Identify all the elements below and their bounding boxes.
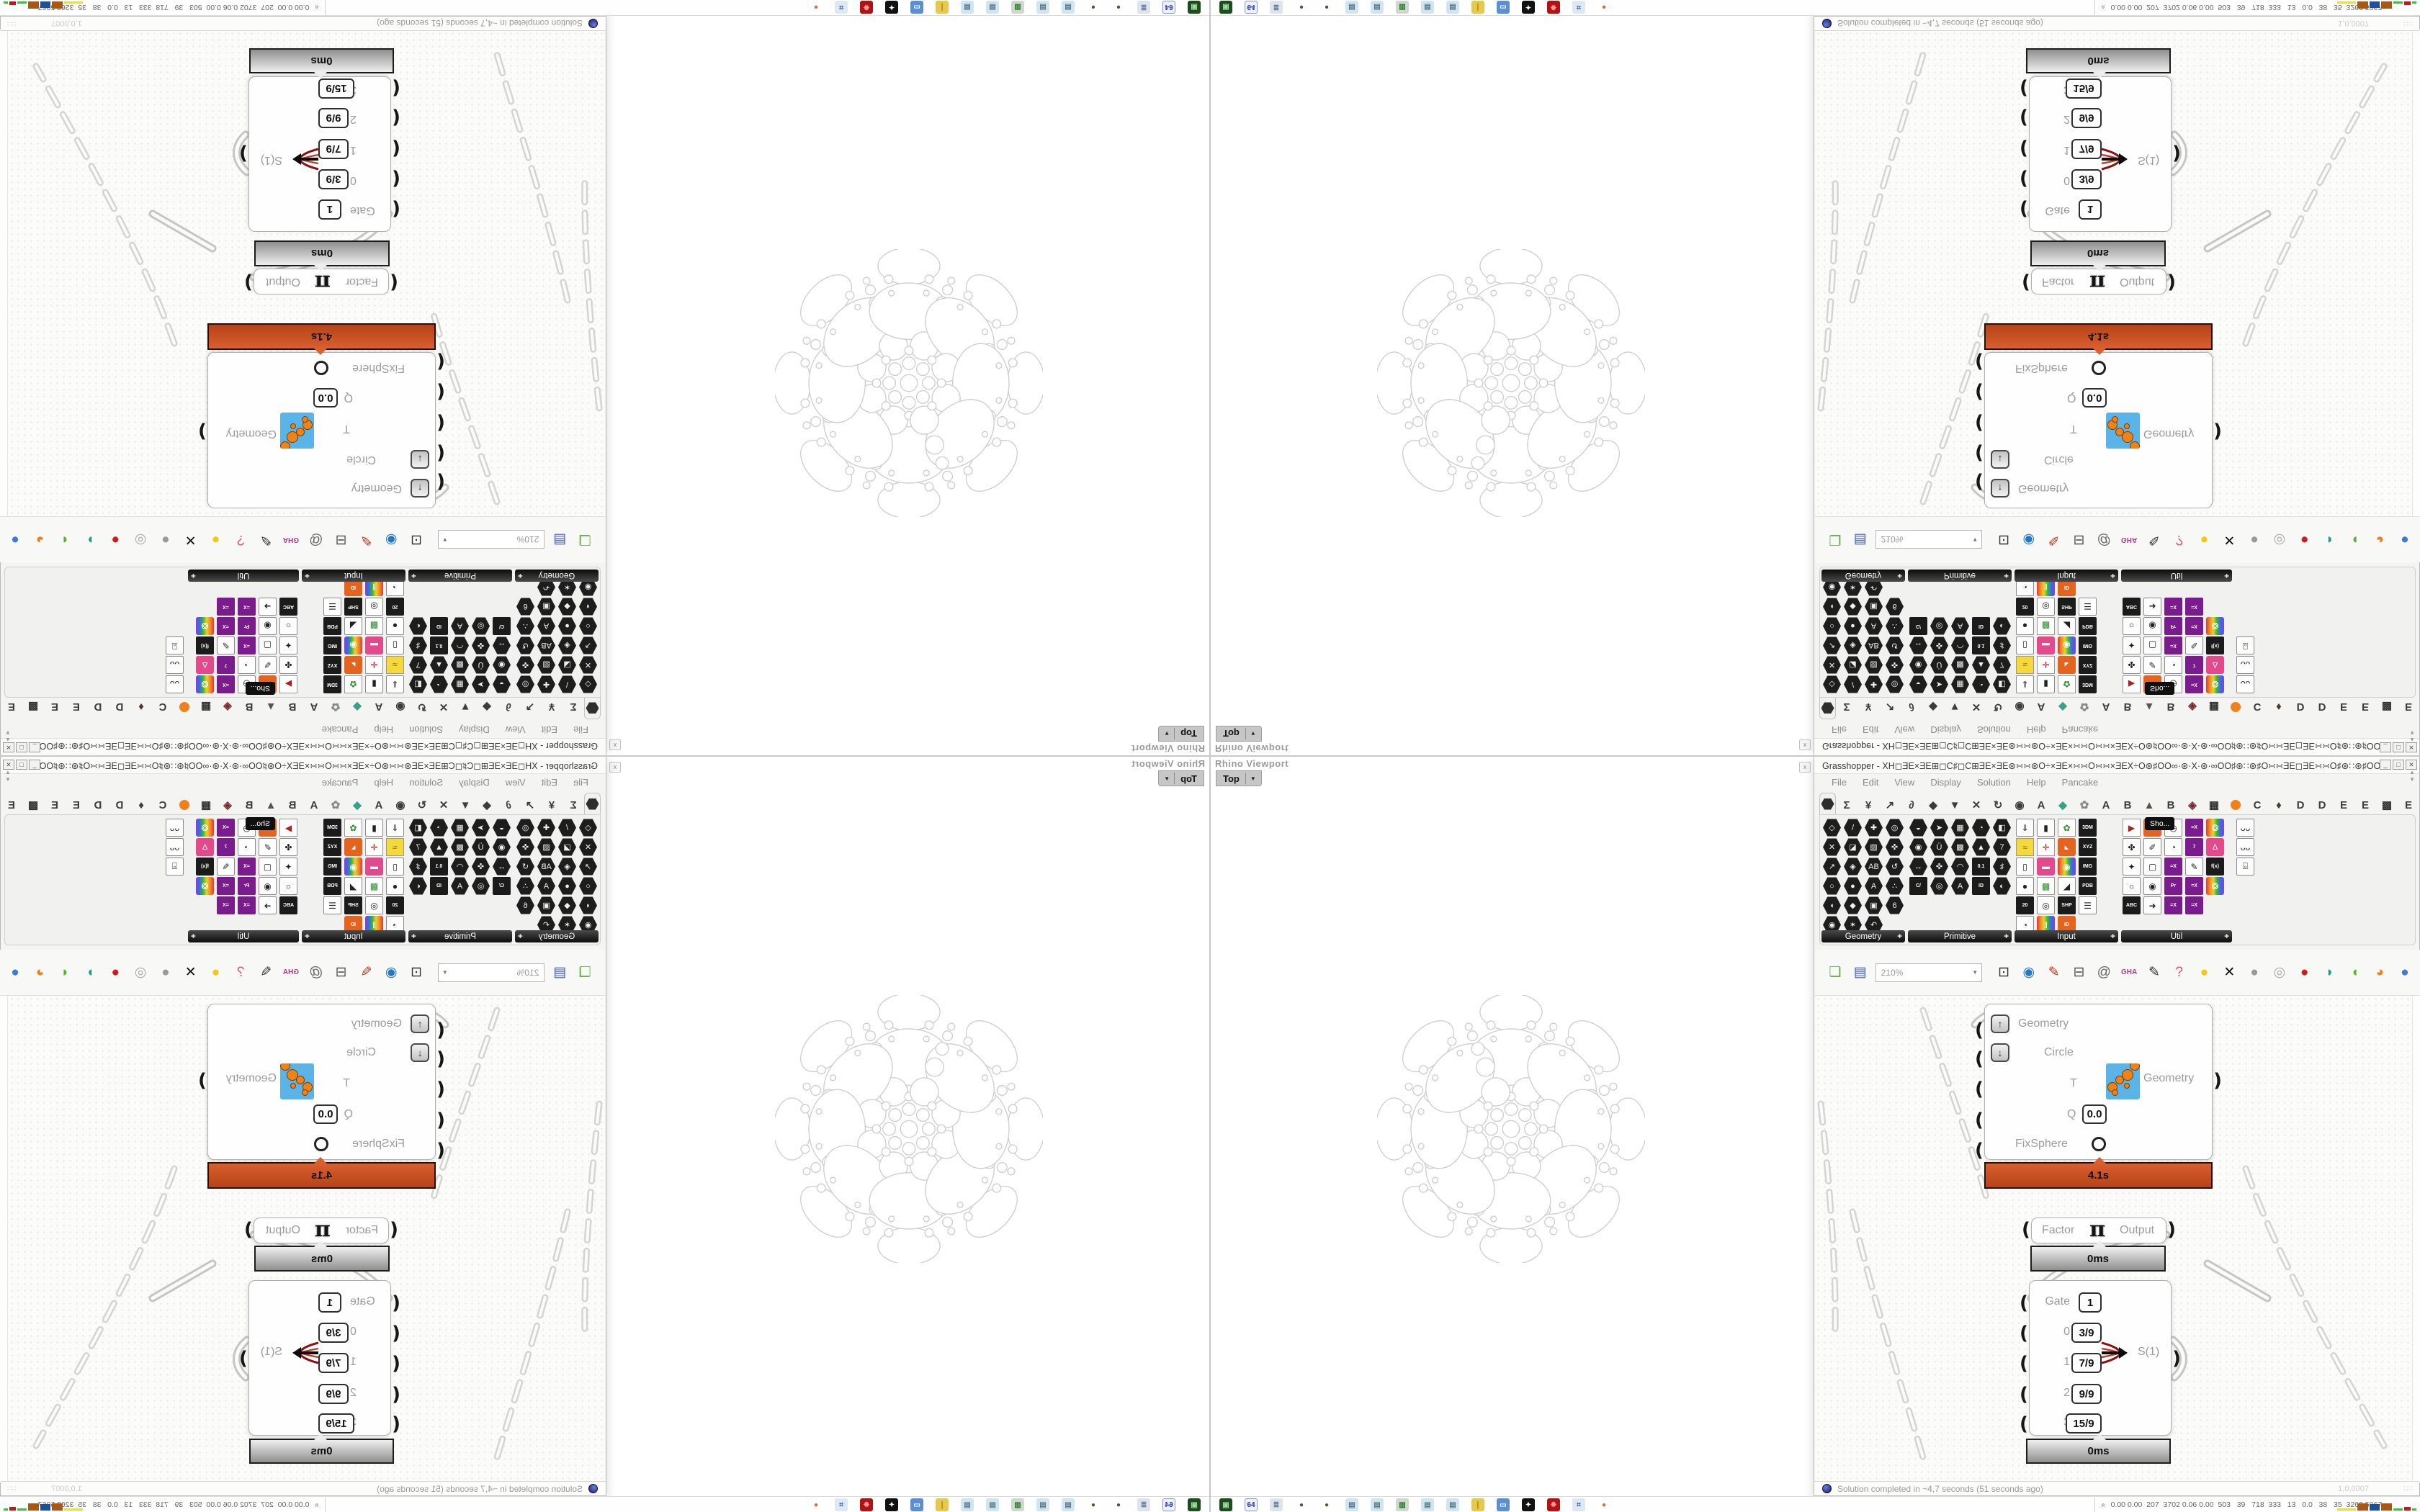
component-icon[interactable]: ◆ xyxy=(558,896,576,914)
component-icon[interactable]: ◔ xyxy=(1972,675,1990,693)
coin-icon[interactable]: ● xyxy=(1320,1,1333,14)
tab-intersect[interactable]: ✕ xyxy=(1966,698,1987,716)
component-icon[interactable]: ➜ xyxy=(259,896,277,914)
notepad-icon[interactable]: ▤ xyxy=(1345,1,1358,14)
component-icon[interactable]: ● xyxy=(1844,877,1862,895)
component-icon[interactable]: ✚ xyxy=(1865,675,1883,693)
component-icon[interactable]: ◣ xyxy=(2058,838,2076,856)
input-socket[interactable]: ( xyxy=(392,171,400,186)
component-icon[interactable]: A xyxy=(537,877,555,895)
sketch-pen-icon[interactable]: ✎ xyxy=(356,962,376,984)
ball-orange-icon[interactable]: ◕ xyxy=(2370,529,2390,551)
tab-plugin-d2[interactable]: D xyxy=(87,796,109,814)
component-icon[interactable]: ➤ xyxy=(1930,675,1948,693)
component-icon[interactable]: PDB xyxy=(323,617,341,635)
component-icon[interactable]: ✦ xyxy=(2123,636,2141,654)
component-icon[interactable]: ✦ xyxy=(2123,858,2141,876)
component-icon[interactable]: ◧ xyxy=(1993,675,2011,693)
output-socket[interactable]: ) xyxy=(198,1074,207,1088)
gate-value-box[interactable]: 15/9 xyxy=(318,1413,354,1434)
component-icon[interactable]: ◣ xyxy=(2058,656,2076,674)
lightbulb-icon[interactable]: ● xyxy=(206,529,226,551)
input-socket[interactable]: ( xyxy=(2020,171,2028,186)
component-icon[interactable]: ✎ xyxy=(217,636,235,654)
menu-item-solution[interactable]: Solution xyxy=(1977,725,2011,736)
component-icon[interactable]: ▧ xyxy=(1865,838,1883,856)
component-icon[interactable]: ◪ xyxy=(558,838,576,856)
component-icon[interactable]: ◈ xyxy=(558,858,576,876)
tab-plugin-grid[interactable]: ▦ xyxy=(195,796,217,814)
component-icon[interactable]: ▯ xyxy=(2016,636,2034,654)
component-icon[interactable]: ❂ xyxy=(196,675,214,693)
component-icon[interactable]: ✜ xyxy=(1886,838,1904,856)
component-icon[interactable]: ▩ xyxy=(2037,877,2055,895)
blob-teal-icon[interactable]: ◗ xyxy=(2320,529,2340,551)
input-socket[interactable]: ( xyxy=(2020,81,2028,95)
component-icon[interactable]: Pr xyxy=(2164,877,2182,895)
fixsphere-toggle[interactable] xyxy=(2092,1137,2106,1151)
input-socket[interactable]: ( xyxy=(392,1326,400,1341)
component-icon[interactable]: Δ xyxy=(2206,656,2224,674)
component-icon[interactable]: ✕ xyxy=(1823,656,1841,674)
tab-intersect[interactable]: ✕ xyxy=(1966,796,1987,814)
viewport-close-icon[interactable]: x xyxy=(1799,762,1811,773)
component-icon[interactable]: Ü xyxy=(472,656,490,674)
grasshopper-titlebar[interactable]: Grasshopper - XH◻ƎE×ƎE⊞◻C♯◻C⊞ƎE×ƎE⊛∺∺⊛O÷… xyxy=(1814,757,2419,774)
gate-value-box[interactable]: 1 xyxy=(318,199,341,220)
tab-plugin-a1[interactable]: A xyxy=(2030,796,2052,814)
tab-plugin-grid[interactable]: ▦ xyxy=(2203,796,2225,814)
tab-plugin-a1[interactable]: A xyxy=(368,698,390,716)
focus-extents-icon[interactable]: ⊡ xyxy=(406,962,426,984)
menu-item-solution[interactable]: Solution xyxy=(409,777,443,788)
component-icon[interactable]: ID xyxy=(430,617,448,635)
grasshopper-titlebar[interactable]: Grasshopper - XH◻ƎE×ƎE⊞◻C♯◻C⊞ƎE×ƎE⊛∺∺⊛O÷… xyxy=(1814,738,2419,755)
component-icon[interactable]: ↺ xyxy=(1886,858,1904,876)
component-icon[interactable]: ↺ xyxy=(1886,636,1904,654)
canvas-scrollbar[interactable] xyxy=(0,996,8,1482)
ball-orange-icon[interactable]: ◕ xyxy=(30,529,50,551)
component-icon[interactable]: ● xyxy=(2016,877,2034,895)
component-icon[interactable]: 20 xyxy=(2016,598,2034,616)
blob-teal-icon[interactable]: ◗ xyxy=(81,962,101,984)
component-icon[interactable]: / xyxy=(558,819,576,837)
preview-off-icon[interactable]: ● xyxy=(2244,962,2264,984)
close-button[interactable]: ✕ xyxy=(3,742,14,752)
arrow-down-button[interactable]: ↓ xyxy=(1991,450,2009,469)
gate-value-box[interactable]: 15/9 xyxy=(2066,1413,2102,1434)
grasshopper-titlebar[interactable]: Grasshopper - XH◻ƎE×ƎE⊞◻C♯◻C⊞ƎE×ƎE⊛∺∺⊛O÷… xyxy=(1,738,606,755)
component-icon[interactable]: ▯ xyxy=(386,636,404,654)
menu-item-pancake[interactable]: Pancake xyxy=(2062,725,2099,736)
component-icon[interactable]: ◉ xyxy=(1909,656,1927,674)
tab-plugin-leaf[interactable]: ◆ xyxy=(346,796,368,814)
input-socket[interactable]: ( xyxy=(1975,1082,1984,1097)
component-icon[interactable]: ◎ xyxy=(1886,675,1904,693)
component-icon[interactable]: ☰ xyxy=(2079,598,2097,616)
palette-group-label[interactable]: Util✚ xyxy=(188,930,299,942)
component-icon[interactable]: SHP xyxy=(344,896,362,914)
lightbulb-icon[interactable]: ● xyxy=(2195,962,2215,984)
tab-params-selected[interactable] xyxy=(1819,793,1836,814)
calculator-icon[interactable]: ⌗ xyxy=(1572,1498,1585,1511)
component-icon[interactable]: ◒ xyxy=(1909,675,1927,693)
component-icon[interactable]: ◎ xyxy=(365,598,383,616)
tab-maths[interactable]: Σ xyxy=(1836,796,1857,814)
component-icon[interactable]: ᴗᴗ xyxy=(2236,675,2254,693)
component-icon[interactable]: ➤ xyxy=(472,819,490,837)
zoom-level-box[interactable]: 210%▼ xyxy=(1875,963,1983,982)
component-icon[interactable]: ᴗᴗ xyxy=(166,656,184,674)
component-icon[interactable]: ◆ xyxy=(558,598,576,616)
component-icon[interactable]: ○ xyxy=(1823,617,1841,635)
tab-sets[interactable]: ¥ xyxy=(1857,796,1879,814)
tab-maths[interactable]: Σ xyxy=(1836,698,1857,716)
component-icon[interactable]: ○ xyxy=(279,877,297,895)
component-icon[interactable]: C/ xyxy=(1909,617,1927,635)
component-icon[interactable]: 6 xyxy=(1886,598,1904,616)
component-icon[interactable]: =X xyxy=(2185,675,2203,693)
component-icon[interactable]: ◉ xyxy=(259,877,277,895)
component-icon[interactable]: ❂ xyxy=(2206,877,2224,895)
component-icon[interactable]: ▣ xyxy=(1865,598,1883,616)
component-icon[interactable]: ◢ xyxy=(2058,617,2076,635)
component-icon[interactable]: ◔ xyxy=(238,656,256,674)
component-icon[interactable]: ▦ xyxy=(1951,675,1969,693)
component-icon[interactable]: ◣ xyxy=(344,656,362,674)
component-icon[interactable] xyxy=(2257,656,2275,674)
menu-item-solution[interactable]: Solution xyxy=(1977,777,2011,788)
chevron-down-icon[interactable]: ▼ xyxy=(1162,775,1172,782)
close-button[interactable]: ✕ xyxy=(3,760,14,770)
component-icon[interactable]: ◎ xyxy=(472,617,490,635)
output-socket[interactable]: ) xyxy=(2213,424,2222,438)
tab-plugin-c[interactable]: C xyxy=(2246,698,2268,716)
tab-plugin-shield[interactable]: ◈ xyxy=(2182,698,2203,716)
tab-plugin-a2[interactable]: A xyxy=(303,698,325,716)
component-icon[interactable]: ◐ xyxy=(409,617,427,635)
arrow-up-button[interactable]: ↑ xyxy=(411,479,429,498)
component-icon[interactable]: AB xyxy=(537,858,555,876)
component-icon[interactable]: 0.1 xyxy=(430,858,448,876)
component-icon[interactable]: ✤ xyxy=(2123,656,2141,674)
component-icon[interactable]: A xyxy=(537,617,555,635)
component-icon[interactable]: ☰ xyxy=(323,896,341,914)
component-icon[interactable]: ▦ xyxy=(451,819,469,837)
coin-icon[interactable]: ● xyxy=(1295,1,1308,14)
component-icon[interactable]: ▩ xyxy=(451,656,469,674)
coin-icon[interactable]: ● xyxy=(1320,1498,1333,1511)
arrow-down-button[interactable]: ↓ xyxy=(1991,1043,2009,1062)
component-icon[interactable]: ○ xyxy=(2123,617,2141,635)
component-icon[interactable]: =X xyxy=(2164,636,2182,654)
component-icon[interactable]: ◇ xyxy=(579,819,597,837)
component-icon[interactable]: ○ xyxy=(1823,877,1841,895)
component-icon[interactable]: ▲ xyxy=(430,656,448,674)
component-icon[interactable]: ◉ xyxy=(2058,858,2076,876)
component-icon[interactable]: Pr xyxy=(238,617,256,635)
component-icon[interactable]: ◧ xyxy=(409,675,427,693)
component-icon[interactable]: 7 xyxy=(2185,656,2203,674)
tab-plugin-leaf[interactable]: ◆ xyxy=(2052,796,2074,814)
component-icon[interactable]: ✛ xyxy=(2037,656,2055,674)
coin-icon[interactable]: ● xyxy=(1087,1498,1100,1511)
notepad-icon[interactable]: ▤ xyxy=(1036,1,1049,14)
component-icon[interactable]: Δ xyxy=(196,656,214,674)
component-icon[interactable]: 20 xyxy=(386,896,404,914)
tab-plugin-d1[interactable]: D xyxy=(109,796,130,814)
save-file-icon[interactable]: ▤ xyxy=(550,529,570,551)
component-icon[interactable]: ▶ xyxy=(279,819,297,837)
component-icon[interactable]: ◠ xyxy=(1951,858,1969,876)
component-icon[interactable]: ❂ xyxy=(196,617,214,635)
tab-plugin-e2[interactable]: E xyxy=(44,698,66,716)
tab-transform[interactable]: ↻ xyxy=(411,698,433,716)
component-icon[interactable]: ✤ xyxy=(279,656,297,674)
resize-grip[interactable]: ∷∷ xyxy=(6,1485,16,1493)
notepad-icon[interactable]: ▤ xyxy=(1371,1,1384,14)
tab-plugin-dotgrid[interactable]: ▩ xyxy=(22,796,44,814)
preview-eye-icon[interactable]: ◉ xyxy=(2019,962,2039,984)
input-socket[interactable]: ( xyxy=(392,1356,400,1371)
component-icon[interactable]: ⌻ xyxy=(166,858,184,876)
component-icon[interactable]: ↔ xyxy=(1909,636,1927,654)
tab-plugin-mountain[interactable]: ▲ xyxy=(2138,796,2160,814)
component-icon[interactable]: ᴗᴗ xyxy=(2236,838,2254,856)
display-settings-icon[interactable]: ▭ xyxy=(1497,1,1510,14)
component-icon[interactable]: ◖ xyxy=(579,896,597,914)
blob-green-icon[interactable]: ◖ xyxy=(2345,962,2365,984)
component-icon[interactable]: 0.1 xyxy=(430,636,448,654)
component-icon[interactable]: ❂ xyxy=(2206,617,2224,635)
component-icon[interactable]: ◉ xyxy=(259,617,277,635)
component-icon[interactable]: ◔ xyxy=(2164,656,2182,674)
component-icon[interactable] xyxy=(145,656,163,674)
arrow-down-button[interactable]: ↓ xyxy=(411,1043,429,1062)
component-icon[interactable]: ◈ xyxy=(1844,858,1862,876)
folder-icon[interactable]: ❘ xyxy=(1471,1498,1484,1511)
component-icon[interactable]: ○ xyxy=(279,617,297,635)
output-socket[interactable]: ) xyxy=(2167,1223,2176,1237)
component-icon[interactable]: ✕ xyxy=(579,656,597,674)
component-icon[interactable]: ✚ xyxy=(537,819,555,837)
component-icon[interactable]: ➤ xyxy=(1930,819,1948,837)
component-icon[interactable]: / xyxy=(1844,675,1862,693)
component-icon[interactable]: ✐ xyxy=(259,838,277,856)
component-icon[interactable]: ◒ xyxy=(493,819,511,837)
component-icon[interactable] xyxy=(145,819,163,837)
output-socket[interactable]: ) xyxy=(2172,146,2181,161)
component-icon[interactable]: XYZ xyxy=(2079,838,2097,856)
preview-shaded-icon[interactable]: ● xyxy=(105,529,125,551)
chevron-icon[interactable]: » xyxy=(2099,5,2107,9)
menu-item-edit[interactable]: Edit xyxy=(542,777,557,788)
chevron-down-icon[interactable]: ▼ xyxy=(1972,536,1981,543)
wire-display-icon[interactable]: ✕ xyxy=(2219,962,2239,984)
component-icon[interactable]: =X xyxy=(238,636,256,654)
toolbar-scroll-arrows[interactable]: ▲▼ xyxy=(5,770,11,783)
input-socket[interactable]: ( xyxy=(436,354,445,369)
component-icon[interactable]: ✜ xyxy=(516,656,534,674)
rhino-app-icon[interactable]: ✦ xyxy=(1522,1498,1535,1511)
drive-utility-icon[interactable]: ▣ xyxy=(1219,1,1232,14)
component-icon[interactable]: ✜ xyxy=(1930,858,1948,876)
component-icon[interactable]: ⌻ xyxy=(166,636,184,654)
tab-plugin-orange-dot[interactable] xyxy=(174,698,195,716)
component-pi[interactable]: ( ) Factor π Output xyxy=(2031,1218,2166,1243)
component-icon[interactable]: ⇓ xyxy=(386,675,404,693)
output-socket[interactable]: ) xyxy=(239,1351,248,1366)
viewport-close-icon[interactable]: x xyxy=(609,762,621,773)
minimize-button[interactable]: _ xyxy=(2380,742,2391,752)
preview-off-icon[interactable]: ● xyxy=(156,962,176,984)
tab-plugin-b1[interactable]: B xyxy=(2117,698,2138,716)
gate-value-box[interactable]: 7/9 xyxy=(318,139,349,159)
maximize-button[interactable]: □ xyxy=(16,742,27,752)
component-icon[interactable]: f(x) xyxy=(196,636,214,654)
component-icon[interactable]: ◧ xyxy=(1993,819,2011,837)
tab-plugin-leaf[interactable]: ◆ xyxy=(2052,698,2074,716)
input-socket[interactable]: ( xyxy=(392,1296,400,1310)
component-icon[interactable]: ᴗᴗ xyxy=(166,675,184,693)
component-icon[interactable]: ▬ xyxy=(2037,636,2055,654)
at-icon[interactable]: @ xyxy=(306,529,326,551)
component-icon[interactable]: 3DM xyxy=(2079,675,2097,693)
gha-recycle-icon[interactable]: GHA xyxy=(281,962,301,984)
component-icon[interactable]: ❂ xyxy=(196,819,214,837)
gate-value-box[interactable]: 3/9 xyxy=(2071,1323,2102,1343)
floppy-64-icon[interactable]: 64 xyxy=(1245,1,1258,14)
maximize-button[interactable]: □ xyxy=(16,760,27,770)
gate-value-box[interactable]: 9/9 xyxy=(318,1384,349,1404)
component-pi[interactable]: ( ) Factor π Output xyxy=(254,269,389,294)
input-socket[interactable]: ( xyxy=(1975,1052,1984,1066)
component-icon[interactable]: 0.1 xyxy=(1972,636,1990,654)
tab-plugin-d2[interactable]: D xyxy=(87,698,109,716)
palette-group-label[interactable]: Util✚ xyxy=(2121,570,2232,582)
palette-group-label[interactable]: Input✚ xyxy=(2015,570,2118,582)
component-icon[interactable]: A xyxy=(451,617,469,635)
tab-vector[interactable]: ↗ xyxy=(1879,698,1901,716)
input-socket[interactable]: ( xyxy=(392,110,400,125)
component-icon[interactable]: ● xyxy=(558,877,576,895)
sketch-pen-icon[interactable]: ✎ xyxy=(2044,529,2064,551)
component-fixsphere[interactable]: ( ( ( ( ( ) ↑ ↓ Geometry Circle T Q FixS… xyxy=(1984,1004,2213,1160)
component-icon[interactable]: ○ xyxy=(2123,877,2141,895)
chevron-down-icon[interactable]: ▼ xyxy=(439,969,448,976)
preview-eye-icon[interactable]: ◉ xyxy=(381,529,401,551)
component-icon[interactable]: =X xyxy=(217,675,235,693)
menu-item-display[interactable]: Display xyxy=(1930,725,1961,736)
menu-item-solution[interactable]: Solution xyxy=(409,725,443,736)
coin-icon[interactable]: ● xyxy=(1112,1498,1125,1511)
component-icon[interactable]: ▬ xyxy=(365,636,383,654)
find-note-icon[interactable]: ✎ xyxy=(2144,962,2164,984)
terminal-monitor-icon[interactable]: ▥ xyxy=(1011,1498,1024,1511)
component-icon[interactable]: ✐ xyxy=(2143,656,2161,674)
input-socket[interactable]: ( xyxy=(392,141,400,156)
tab-curve[interactable]: ∂ xyxy=(1901,796,1922,814)
chevron-icon[interactable]: » xyxy=(313,5,321,9)
tab-plugin-b1[interactable]: B xyxy=(2117,796,2138,814)
component-icon[interactable]: ✤ xyxy=(2123,838,2141,856)
component-icon[interactable]: ▩ xyxy=(365,617,383,635)
component-icon[interactable]: Ü xyxy=(1930,838,1948,856)
tab-plugin-mountain[interactable]: ▲ xyxy=(260,796,282,814)
input-socket[interactable]: ( xyxy=(2020,202,2028,216)
chevron-down-icon[interactable]: ▼ xyxy=(1248,731,1258,737)
tab-plugin-mountain[interactable]: ▲ xyxy=(260,698,282,716)
wire-display-icon[interactable]: ✕ xyxy=(181,962,201,984)
palette-group-label[interactable]: Input✚ xyxy=(2015,930,2118,942)
component-icon[interactable]: ◆ xyxy=(1844,598,1862,616)
component-icon[interactable]: 3DM xyxy=(2079,819,2097,837)
menu-item-view[interactable]: View xyxy=(506,777,526,788)
component-icon[interactable]: ✜ xyxy=(472,858,490,876)
zoom-level-box[interactable]: 210%▼ xyxy=(438,531,545,549)
menu-item-help[interactable]: Help xyxy=(2027,725,2046,736)
component-icon[interactable]: ✦ xyxy=(279,858,297,876)
menu-item-pancake[interactable]: Pancake xyxy=(322,777,359,788)
component-icon[interactable] xyxy=(2257,838,2275,856)
component-fixsphere[interactable]: ( ( ( ( ( ) ↑ ↓ Geometry Circle T Q FixS… xyxy=(207,352,436,508)
tab-surface[interactable]: ◆ xyxy=(1922,698,1944,716)
terminal-monitor-icon[interactable]: ▥ xyxy=(1396,1498,1409,1511)
component-icon[interactable]: ▢ xyxy=(2143,858,2161,876)
chevron-down-icon[interactable]: ▼ xyxy=(439,536,448,543)
tab-curve[interactable]: ∂ xyxy=(1901,698,1922,716)
tab-plugin-c[interactable]: C xyxy=(2246,796,2268,814)
chevron-icon[interactable]: » xyxy=(2099,1503,2107,1507)
component-icon[interactable]: ◪ xyxy=(558,656,576,674)
component-icon[interactable]: A xyxy=(1951,877,1969,895)
tab-maths[interactable]: Σ xyxy=(563,698,584,716)
preview-wire-icon[interactable]: ◎ xyxy=(130,529,151,551)
component-icon[interactable]: ≈ xyxy=(386,838,404,856)
find-note-icon[interactable]: ✎ xyxy=(256,529,276,551)
component-icon[interactable]: =X xyxy=(217,598,235,616)
input-socket[interactable]: ( xyxy=(2020,1356,2028,1371)
component-icon[interactable]: IMG xyxy=(2079,858,2097,876)
palette-group-label[interactable]: Primitive✚ xyxy=(408,570,512,582)
browser-orb-icon[interactable]: ● xyxy=(1597,1498,1610,1511)
component-icon[interactable]: ↔ xyxy=(1909,858,1927,876)
focus-extents-icon[interactable]: ⊡ xyxy=(1994,962,2014,984)
component-icon[interactable]: ▧ xyxy=(537,838,555,856)
component-icon[interactable]: ⌻ xyxy=(2236,858,2254,876)
component-icon[interactable]: A xyxy=(1865,617,1883,635)
input-socket[interactable]: ( xyxy=(436,1082,445,1097)
component-icon[interactable]: ◎ xyxy=(1886,819,1904,837)
input-socket[interactable]: ( xyxy=(392,202,400,216)
floppy-64-icon[interactable]: 64 xyxy=(1162,1498,1175,1511)
component-icon[interactable]: 7 xyxy=(217,838,235,856)
ball-orange-icon[interactable]: ◕ xyxy=(30,962,50,984)
notepad-icon[interactable]: ▤ xyxy=(1371,1498,1384,1511)
component-icon[interactable]: ▲ xyxy=(1972,656,1990,674)
drive-utility-icon[interactable]: ▣ xyxy=(1188,1,1201,14)
rhino-app-icon[interactable]: ✦ xyxy=(1522,1,1535,14)
tab-plugin-e3[interactable]: E xyxy=(1,796,22,814)
calculator-icon[interactable]: ⌗ xyxy=(835,1498,848,1511)
notepad-icon[interactable]: ▤ xyxy=(1062,1,1075,14)
tab-plugin-e1[interactable]: E xyxy=(66,698,87,716)
lightbulb-icon[interactable]: ● xyxy=(2195,529,2215,551)
component-icon[interactable]: ▮ xyxy=(2037,675,2055,693)
component-icon[interactable]: ⌻ xyxy=(2236,636,2254,654)
component-icon[interactable]: ✜ xyxy=(516,838,534,856)
component-icon[interactable]: ◎ xyxy=(2037,896,2055,914)
